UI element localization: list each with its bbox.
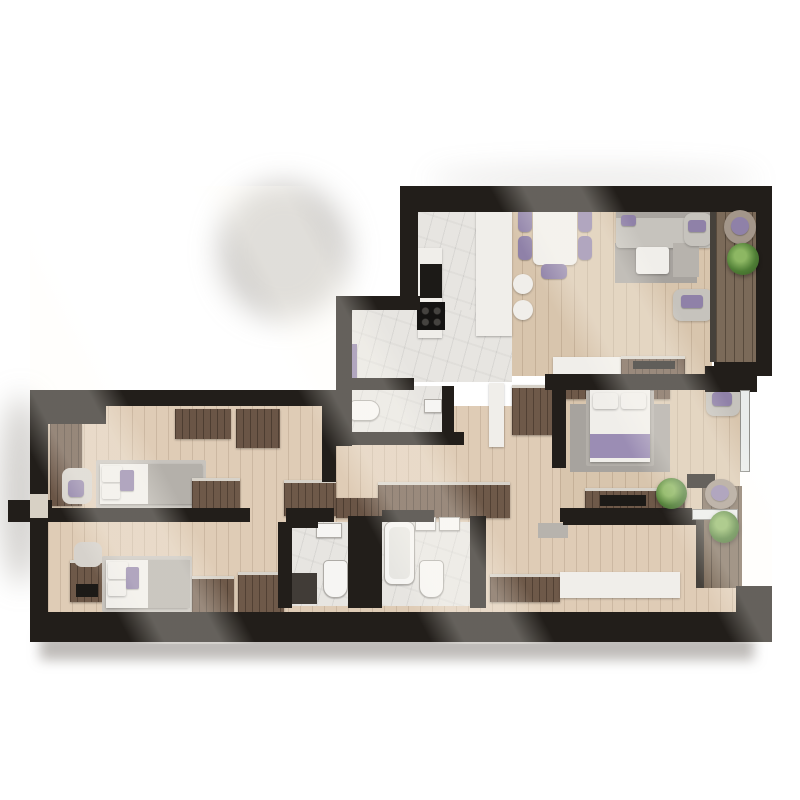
bedroom3-pillow-1 — [108, 562, 128, 579]
master-desk-tv — [600, 495, 646, 506]
bg-shadow-kitchen-left — [218, 182, 350, 320]
balcony1-chair-cushion — [731, 217, 749, 235]
wc-toilet — [350, 400, 380, 421]
bedroom2-chair-cushion — [68, 480, 84, 497]
bedroom2-wardrobe-top-2 — [236, 409, 280, 448]
sofa-pillow-1 — [621, 215, 636, 226]
hall-cabinet-tall — [489, 383, 504, 447]
master-chair-cushion — [712, 392, 732, 406]
bedroom3-pillow-accent — [126, 567, 139, 589]
wall-bath1-left — [278, 522, 292, 608]
bedroom3-chair — [74, 542, 102, 567]
bedroom3-pillow-2 — [108, 581, 126, 596]
wall-band-bottom — [30, 612, 772, 642]
bedroom2-cabinet — [192, 478, 240, 511]
wall-mid-left — [48, 508, 250, 522]
wall-bath-mid — [348, 516, 382, 608]
master-bed-pillow-1 — [593, 393, 618, 409]
utility-wardrobe — [490, 574, 560, 602]
bar-stool-2 — [513, 300, 533, 320]
hall-closet — [512, 385, 554, 435]
master-desk-plant — [656, 478, 687, 509]
wall-bath2-right — [470, 516, 486, 608]
wc-sink — [424, 399, 442, 413]
bath2-sink-2 — [439, 517, 460, 531]
kitchen-cooktop — [417, 302, 445, 330]
kitchen-fridge — [420, 264, 442, 298]
wall-bedroom-left — [552, 374, 566, 468]
armchair-1-pillow — [681, 295, 703, 308]
wall-kitchen-left — [336, 296, 352, 446]
wall-band-left-upper — [30, 390, 48, 494]
window-master — [740, 390, 750, 472]
dining-chair-5 — [541, 264, 567, 279]
balcony2-chair-cushion — [711, 485, 729, 501]
wall-bedroom2-right — [322, 406, 336, 482]
bath1-shower — [290, 573, 317, 604]
wall-bedroom-right — [705, 366, 757, 392]
armchair-2-pillow — [688, 220, 706, 232]
ottoman — [673, 243, 699, 277]
tv — [633, 361, 675, 369]
wall-upper-left — [400, 186, 418, 310]
bedroom2-pillow-1 — [102, 466, 122, 482]
bedroom2-wardrobe-top-1 — [175, 409, 231, 439]
master-bed-pillow-2 — [621, 393, 646, 409]
entry-bench — [538, 523, 568, 538]
bar-stool-1 — [513, 274, 533, 294]
entry-door — [30, 494, 48, 518]
wall-top — [400, 186, 772, 212]
wall-balcony1-right — [756, 198, 772, 376]
floor-plan — [0, 0, 800, 800]
bath2-tub-inner — [389, 527, 410, 579]
kitchen-island — [476, 200, 512, 336]
dining-chair-4 — [578, 236, 592, 260]
coffee-table — [636, 247, 669, 274]
wall-utility-top — [563, 512, 703, 525]
bedroom3-blanket — [148, 560, 190, 608]
wall-living-bedroom — [545, 374, 707, 390]
wall-bath1-top — [292, 516, 318, 528]
balcony1-plant — [727, 243, 759, 275]
wall-wc-right — [442, 386, 454, 438]
bath2-toilet — [419, 560, 444, 598]
bedroom2-pillow-accent — [120, 470, 134, 491]
bath1-toilet — [323, 560, 348, 598]
balcony2-plant — [709, 511, 739, 543]
bedroom2-pillow-2 — [102, 484, 120, 499]
bedroom3-laptop — [76, 584, 98, 597]
bedroom3-wardrobe-1 — [192, 576, 234, 612]
frame-balcony2 — [696, 520, 704, 588]
utility-counter — [560, 572, 680, 598]
hall-wardrobe-3 — [336, 498, 378, 518]
entry-canopy-leg — [36, 522, 41, 566]
master-bed-blanket — [590, 434, 650, 458]
frame-balcony1 — [710, 212, 716, 362]
bath1-sink — [316, 523, 342, 538]
dining-chair-2 — [518, 236, 532, 260]
wall-bath2-top — [382, 510, 434, 522]
wall-wc-top — [352, 378, 414, 390]
